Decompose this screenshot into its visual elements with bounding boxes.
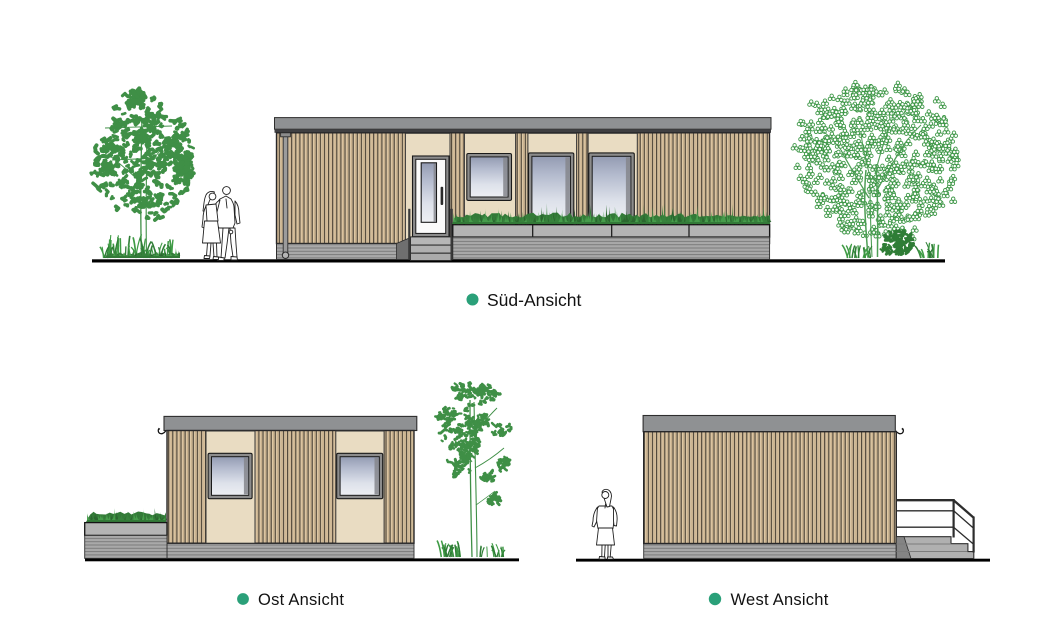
svg-text:Süd-Ansicht: Süd-Ansicht [487, 290, 581, 310]
svg-text:Ost Ansicht: Ost Ansicht [258, 591, 344, 609]
svg-text:West Ansicht: West Ansicht [731, 591, 829, 609]
